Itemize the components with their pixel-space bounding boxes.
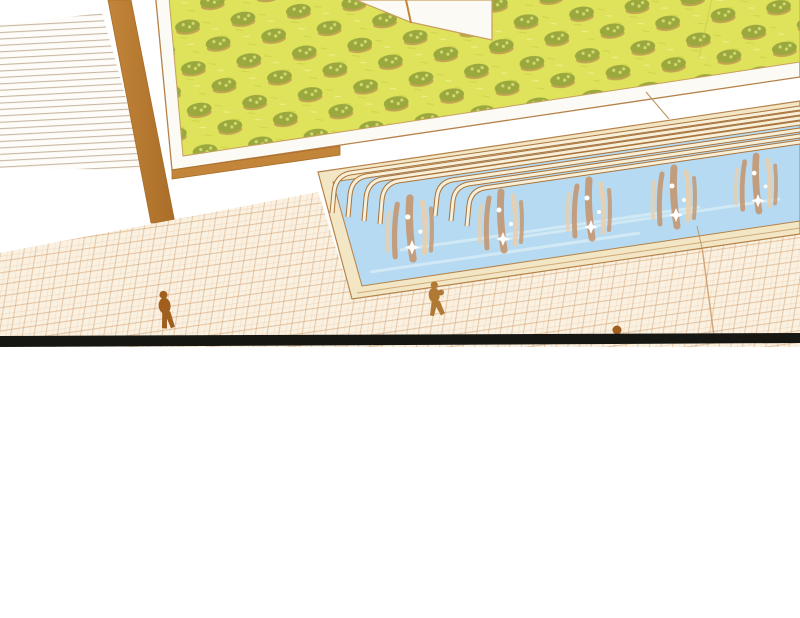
figure-head [613,326,622,335]
splash-1 [388,198,432,259]
splash-3 [568,180,610,238]
splash-2 [480,192,522,250]
splash-4 [653,168,695,226]
courtyard-scene [0,0,800,618]
comic-panel [0,0,800,618]
splash-5 [736,156,776,211]
blank-gutter [0,347,800,618]
